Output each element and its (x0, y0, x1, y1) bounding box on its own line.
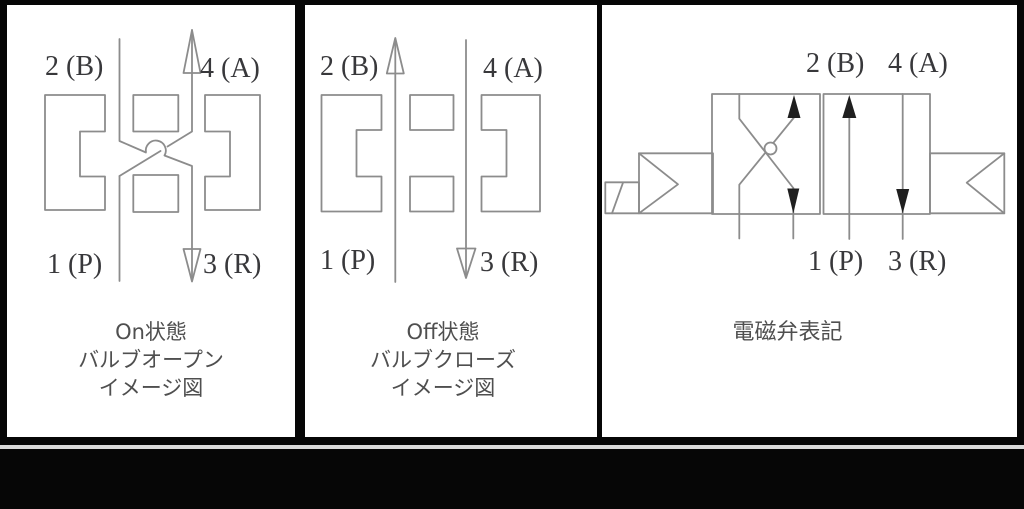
flow-arrow-down-icon (787, 189, 799, 214)
port-label-4a: 4 (A) (200, 55, 260, 83)
port-label-2b: 2 (B) (806, 50, 864, 78)
return-triangle-icon (967, 153, 1005, 213)
right-seat-shape (482, 95, 541, 212)
caption-line: Off状態 (289, 318, 597, 346)
pilot-slash-icon (612, 183, 623, 214)
caption-line: イメージ図 (289, 374, 597, 402)
left-seat-shape (322, 95, 382, 212)
chamber-straight (824, 94, 931, 214)
lower-seat-shape (410, 177, 454, 212)
pivot-disc-icon (765, 143, 777, 155)
caption-solenoid-symbol: 電磁弁表記 (558, 319, 1017, 347)
blade-line (120, 151, 161, 176)
port-label-3r: 3 (R) (480, 249, 538, 277)
lower-seat-shape (133, 175, 178, 212)
caption-on-state: On状態 バルブオープン イメージ図 (7, 318, 295, 402)
panel-on-state: 2 (B) 4 (A) 1 (P) 3 (R) On状態 バルブオープン イメー… (7, 5, 295, 437)
caption-line: バルブオープン (7, 346, 295, 374)
flow-arrow-up-icon (842, 95, 856, 118)
port-label-3r: 3 (R) (203, 251, 261, 279)
port-label-2b: 2 (B) (320, 53, 378, 81)
panel-off-state: 2 (B) 4 (A) 1 (P) 3 (R) Off状態 バルブクローズ イメ… (305, 5, 597, 437)
panel-solenoid-symbol: 2 (B) 4 (A) 1 (P) 3 (R) 電磁弁表記 (602, 5, 1017, 437)
figure-valve-states: 2 (B) 4 (A) 1 (P) 3 (R) On状態 バルブオープン イメー… (0, 0, 1024, 509)
caption-off-state: Off状態 バルブクローズ イメージ図 (289, 318, 597, 402)
port-label-2b: 2 (B) (45, 53, 103, 81)
port-label-4a: 4 (A) (888, 50, 948, 78)
port-label-1p: 1 (P) (47, 251, 102, 279)
port-label-3r: 3 (R) (888, 248, 946, 276)
port-label-1p: 1 (P) (320, 247, 375, 275)
caption-line: 電磁弁表記 (558, 319, 1017, 347)
right-seat-shape (205, 95, 260, 210)
flow-arrow-down-icon (896, 189, 909, 214)
caption-line: イメージ図 (7, 374, 295, 402)
port-label-4a: 4 (A) (483, 55, 543, 83)
bottom-divider-line (0, 445, 1024, 449)
upper-seat-shape (133, 95, 178, 132)
solenoid-triangle-icon (639, 153, 678, 213)
left-seat-shape (45, 95, 105, 210)
flow-arrow-up-icon (788, 95, 801, 118)
caption-line: バルブクローズ (289, 346, 597, 374)
upper-seat-shape (410, 95, 454, 130)
caption-line: On状態 (7, 318, 295, 346)
port-label-1p: 1 (P) (808, 248, 863, 276)
